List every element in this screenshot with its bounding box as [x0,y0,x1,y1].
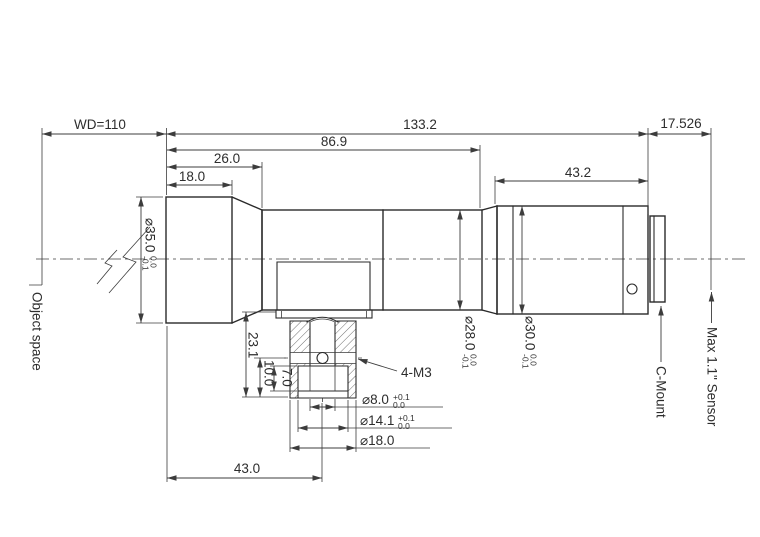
dim-clamp-height-label: 23.1 [246,332,261,358]
object-space-label: Object space [30,292,45,371]
dim-overall-length-label: 133.2 [403,117,437,132]
dim-dia-mid-label: ⌀28.0 [463,316,478,350]
lens-technical-drawing: WD=110 133.2 17.526 86.9 26.0 18.0 43.2 [0,0,760,537]
dim-front-length: 26.0 [167,151,262,167]
dimensions: WD=110 133.2 17.526 86.9 26.0 18.0 43.2 [42,116,711,478]
dim-wd: WD=110 [42,117,166,134]
dim-wd-label: WD=110 [74,117,126,132]
rear-barrel [497,206,648,314]
dim-body-length-label: 86.9 [321,134,347,149]
dim-dia-counterbore-tol-lower: 0.0 [398,421,410,431]
dim-overall-length: 133.2 [166,117,648,134]
dim-dia-bore-label: ⌀8.0 [362,392,389,407]
screw-band [288,353,358,364]
dim-dia-front: ⌀35.0 0.0 -0.1 [141,197,159,323]
dim-dia-counterbore: ⌀14.1 +0.1 0.0 [298,413,452,431]
dim-rear-barrel-length-label: 43.2 [565,165,591,180]
dim-front-cyl-length: 18.0 [167,169,232,185]
lens-body [166,197,665,323]
rear-taper [482,206,497,314]
max-sensor-annotation: Max 1.1" Sensor [705,292,720,427]
dim-dia-front-tol-lower: -0.1 [141,256,151,271]
dim-front-cyl-length-label: 18.0 [179,169,205,184]
dim-dia-rear-tol-lower: -0.1 [521,354,531,369]
front-barrel [166,197,232,323]
dim-front-length-label: 26.0 [214,151,240,166]
c-mount-label: C-Mount [654,366,669,418]
c-mount-annotation: C-Mount [654,306,669,418]
set-screw [627,284,637,294]
max-sensor-label: Max 1.1" Sensor [705,327,720,427]
mid-tube [262,210,482,310]
dim-recess-depth-label: 7.0 [280,368,295,387]
dim-dia-front-label: ⌀35.0 [143,218,158,252]
dim-body-length: 86.9 [167,134,480,150]
dim-dia-rear-label: ⌀30.0 [523,316,538,350]
dim-dia-rear: ⌀30.0 0.0 -0.1 [521,206,539,369]
dim-mount-offset-label: 43.0 [234,461,260,476]
dim-dia-foot: ⌀18.0 [290,433,430,448]
dim-dia-counterbore-label: ⌀14.1 [360,413,394,428]
dim-clamp-height: 23.1 [246,312,261,397]
dim-mount-offset: 43.0 [167,461,322,478]
dim-dia-bore-tol-lower: 0.0 [393,400,405,410]
dim-rear-barrel-length: 43.2 [495,165,648,181]
front-cone [232,197,262,323]
dim-dia-mid-tol-lower: -0.1 [461,354,471,369]
object-space-annotation: Object space [30,292,45,371]
axis-break-symbol-2 [97,250,117,284]
counterbore-recess [298,366,348,398]
dim-flange-distance-label: 17.526 [660,116,701,131]
thread-callout-label: 4-M3 [401,365,432,380]
clamp-collar [277,262,370,310]
dim-dia-mid: ⌀28.0 0.0 -0.1 [460,210,479,369]
dim-flange-distance: 17.526 [648,116,711,134]
clamp-foot [288,317,358,398]
dim-dia-foot-label: ⌀18.0 [360,433,394,448]
drawing-canvas: WD=110 133.2 17.526 86.9 26.0 18.0 43.2 [0,0,760,537]
thread-callout-annotation: 4-M3 [358,359,432,380]
